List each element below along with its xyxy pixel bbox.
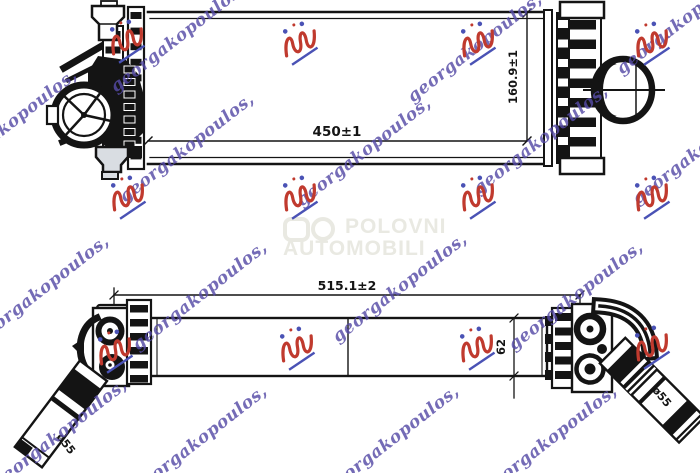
bottom-right-connector: ø55 [545, 304, 700, 443]
intercooler-technical-drawing: 450±1 160.9±1 515.1±2 [0, 0, 700, 473]
top-view: 450±1 160.9±1 [47, 1, 664, 179]
dim-label-62: 62 [494, 339, 508, 355]
bottom-mount-flange [96, 147, 128, 172]
dimension-width-bottom: 515.1±2 [110, 278, 584, 319]
bottom-view: 515.1±2 62 [15, 278, 700, 467]
bottom-left-connector: ø55 [15, 300, 151, 467]
dim-label-160: 160.9±1 [506, 50, 520, 104]
left-hose [15, 361, 107, 468]
dimension-height-top: 160.9±1 [506, 9, 531, 141]
dimension-width-top: 450±1 [144, 124, 531, 145]
product-image: POLOVNI AUTOMOBILI [0, 0, 700, 473]
dim-label-450: 450±1 [313, 124, 362, 140]
dim-label-515: 515.1±2 [318, 278, 377, 293]
